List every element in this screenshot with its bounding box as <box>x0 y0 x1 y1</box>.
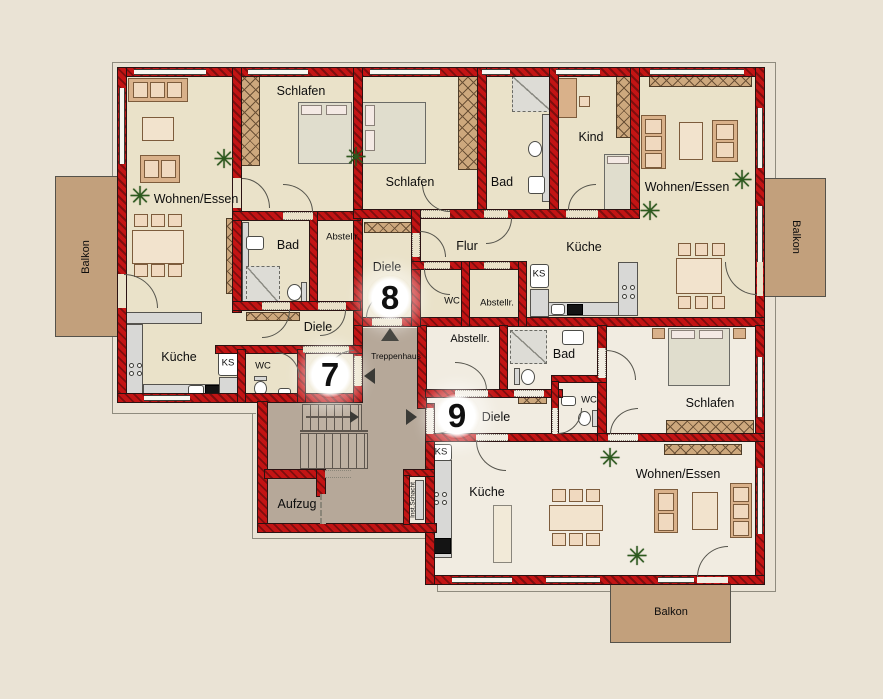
room-label-schlafen-9: Schlafen <box>686 396 735 410</box>
sink-icon <box>528 176 545 194</box>
room-label-flur-8: Flur <box>456 239 478 253</box>
pillow <box>699 330 723 339</box>
building-outline <box>252 413 253 539</box>
chair <box>569 533 583 546</box>
pillow <box>671 330 695 339</box>
sofa-cushion <box>733 504 749 519</box>
dining-table <box>676 258 722 294</box>
wardrobe-icon <box>664 444 742 455</box>
room-label-kueche-8: Küche <box>566 240 601 254</box>
window <box>757 468 763 534</box>
coffee-table <box>679 122 703 160</box>
window <box>757 206 763 262</box>
plant-icon: ✳ <box>639 198 661 224</box>
stairs-up-arrow-icon <box>381 328 399 341</box>
stove-icon <box>442 500 447 505</box>
toilet-icon <box>528 141 542 157</box>
window <box>556 69 600 75</box>
wall <box>462 262 469 326</box>
wall <box>404 476 409 524</box>
chair <box>168 264 182 277</box>
chair <box>134 264 148 277</box>
label-wc-8: WC <box>444 296 460 307</box>
stairs <box>300 433 368 469</box>
chair <box>586 533 600 546</box>
label-ks-8: KS <box>533 269 546 280</box>
door-opening <box>262 302 290 310</box>
door-opening <box>598 348 606 378</box>
stove-icon <box>137 371 142 376</box>
wall <box>500 326 507 396</box>
chair <box>712 243 725 256</box>
room-label-bad-7: Bad <box>277 238 299 252</box>
wall <box>354 68 362 326</box>
chair <box>151 214 165 227</box>
wardrobe-icon <box>240 70 260 166</box>
nightstand <box>652 328 665 339</box>
wall <box>598 326 606 441</box>
shower <box>512 76 552 112</box>
window <box>370 69 440 75</box>
plant-icon: ✳ <box>626 543 648 569</box>
building-outline <box>775 62 776 592</box>
sofa-cushion <box>645 119 662 134</box>
wall <box>631 68 639 218</box>
chair <box>552 489 566 502</box>
plant-icon: ✳ <box>599 445 621 471</box>
window <box>658 577 694 583</box>
sink-icon <box>246 236 264 250</box>
sofa-cushion <box>144 160 159 178</box>
stove-icon <box>129 363 134 368</box>
pillow <box>365 105 375 126</box>
window <box>248 69 308 75</box>
door-opening <box>426 408 434 434</box>
door-opening <box>757 262 763 296</box>
room-label-wohnen-essen-8: Wohnen/Essen <box>645 180 730 194</box>
wardrobe-icon <box>364 222 414 233</box>
chair <box>695 243 708 256</box>
room-label-kueche-7: Küche <box>161 350 196 364</box>
desk <box>556 78 577 118</box>
balcony-label-right: Balkon <box>790 220 802 254</box>
door-opening <box>476 434 508 441</box>
label-wc-9: WC <box>581 395 597 406</box>
plant-icon: ✳ <box>213 146 235 172</box>
room-label-wohnen-essen-9: Wohnen/Essen <box>636 467 721 481</box>
room-label-schlafen-8: Schlafen <box>386 175 435 189</box>
wardrobe-icon <box>458 72 478 170</box>
stove-icon <box>630 294 635 299</box>
wall <box>258 402 267 532</box>
apartment-number-7: 7 <box>307 352 353 398</box>
stove-icon <box>622 294 627 299</box>
kitchen-counter <box>126 324 143 398</box>
entry-arrow-apartment-7-icon <box>364 368 375 384</box>
window <box>144 395 190 401</box>
stove-icon <box>137 363 142 368</box>
stove-icon <box>442 492 447 497</box>
chair <box>134 214 148 227</box>
toilet-icon <box>287 284 302 301</box>
coffee-table <box>142 117 174 141</box>
sofa-cushion <box>167 82 182 98</box>
room-label-schlafen-7: Schlafen <box>277 84 326 98</box>
shower <box>246 266 280 304</box>
sofa-cushion <box>658 513 674 531</box>
apartment-number-8: 8 <box>367 275 413 321</box>
floor-plan: Balkon Balkon Balkon Wohnen/Essen Schlaf… <box>0 0 883 699</box>
sofa-cushion <box>150 82 165 98</box>
window <box>757 357 763 417</box>
sofa-cushion <box>658 493 674 511</box>
window <box>134 69 206 75</box>
door-opening <box>412 233 420 257</box>
stove-top <box>567 304 583 315</box>
dining-table <box>549 505 603 531</box>
balcony-label-bottom: Balkon <box>654 606 688 618</box>
kitchen-sink <box>551 304 565 315</box>
door-opening <box>354 356 362 386</box>
sofa-cushion <box>716 142 734 158</box>
room-label-kueche-9: Küche <box>469 485 504 499</box>
chair <box>678 243 691 256</box>
plant-icon: ✳ <box>129 183 151 209</box>
wall <box>519 262 526 326</box>
stove-icon <box>434 500 439 505</box>
coffee-table <box>692 492 718 530</box>
door-opening <box>424 262 450 269</box>
dining-table <box>132 230 184 264</box>
balcony-label-left: Balkon <box>80 240 92 274</box>
door-opening <box>325 470 351 478</box>
wardrobe-icon <box>666 420 754 435</box>
sink-icon <box>561 396 576 406</box>
sofa-cushion <box>133 82 148 98</box>
sofa-cushion <box>645 136 662 151</box>
room-label-wohnen-essen-7: Wohnen/Essen <box>154 192 239 206</box>
fridge-icon <box>530 289 549 317</box>
wardrobe-icon <box>616 76 632 138</box>
toilet-icon <box>521 369 535 385</box>
pillow <box>607 156 629 164</box>
stove-icon <box>622 285 627 290</box>
room-label-diele-7: Diele <box>304 320 333 334</box>
sofa-cushion <box>645 153 662 168</box>
wall <box>317 470 325 496</box>
sofa-cushion <box>716 124 734 140</box>
sink-icon <box>562 330 584 345</box>
chair <box>569 489 583 502</box>
stove-icon <box>434 492 439 497</box>
shower <box>510 330 547 364</box>
label-ks-7: KS <box>222 358 235 369</box>
window <box>757 108 763 168</box>
room-label-bad-9: Bad <box>553 347 575 361</box>
entry-arrow-apartment-9-icon <box>406 409 417 425</box>
wall <box>550 68 558 218</box>
chair <box>586 489 600 502</box>
window <box>546 577 600 583</box>
label-inst-schacht: Inst.Schacht <box>410 482 417 518</box>
stove-top <box>431 538 451 554</box>
pillow <box>301 105 322 115</box>
wall <box>478 68 486 218</box>
stove-icon <box>630 285 635 290</box>
pillow <box>326 105 347 115</box>
wall <box>258 524 436 532</box>
nightstand <box>733 328 746 339</box>
label-ks-9: KS <box>435 447 448 458</box>
chair <box>151 264 165 277</box>
room-label-abstellraum-7: Abstellr. <box>326 232 360 243</box>
chair <box>678 296 691 309</box>
window <box>650 69 744 75</box>
kitchen-counter <box>618 262 638 316</box>
label-wc-7: WC <box>255 361 271 372</box>
kitchen-island <box>493 505 512 563</box>
building-outline <box>112 413 256 414</box>
sofa-cushion <box>161 160 176 178</box>
plant-icon: ✳ <box>345 144 367 170</box>
chair <box>168 214 182 227</box>
stove-icon <box>129 371 134 376</box>
door-opening <box>484 210 508 218</box>
kitchen-counter <box>126 312 202 324</box>
elevator-door <box>320 494 326 524</box>
window <box>452 577 512 583</box>
chair <box>552 533 566 546</box>
room-label-abstellraum-8: Abstellr. <box>480 298 514 309</box>
room-label-bad-8: Bad <box>491 175 513 189</box>
door-opening <box>318 302 346 310</box>
sofa-cushion <box>733 521 749 536</box>
wall <box>265 470 325 478</box>
room-label-diele-9: Diele <box>482 410 511 424</box>
stair-arrow-line <box>306 416 352 418</box>
door-opening <box>283 212 313 220</box>
wall <box>418 326 426 408</box>
building-outline <box>112 62 776 63</box>
building-outline <box>252 538 438 539</box>
wall <box>238 350 245 402</box>
chair <box>695 296 708 309</box>
window <box>482 69 510 75</box>
stair-direction-arrow-icon <box>350 411 359 423</box>
toilet-tank <box>514 368 520 385</box>
door-opening <box>608 434 638 441</box>
sofa-cushion <box>733 487 749 502</box>
wardrobe-icon <box>649 76 752 87</box>
toilet-tank <box>254 376 267 381</box>
room-label-diele-8: Diele <box>373 260 402 274</box>
room-label-abstellraum-9: Abstellr. <box>450 333 489 345</box>
room-label-kind-8: Kind <box>578 130 603 144</box>
door-opening <box>566 210 598 218</box>
room-label-treppenhaus: Treppenhaus <box>371 351 421 361</box>
plant-icon: ✳ <box>731 167 753 193</box>
apartment-number-9: 9 <box>434 393 480 439</box>
door-opening <box>514 390 544 397</box>
window <box>119 88 125 164</box>
chair <box>579 96 590 107</box>
room-label-aufzug: Aufzug <box>278 497 317 511</box>
wall <box>310 212 317 310</box>
door-opening <box>697 577 728 583</box>
stair-divider <box>300 430 368 432</box>
chair <box>712 296 725 309</box>
door-opening <box>484 262 510 269</box>
